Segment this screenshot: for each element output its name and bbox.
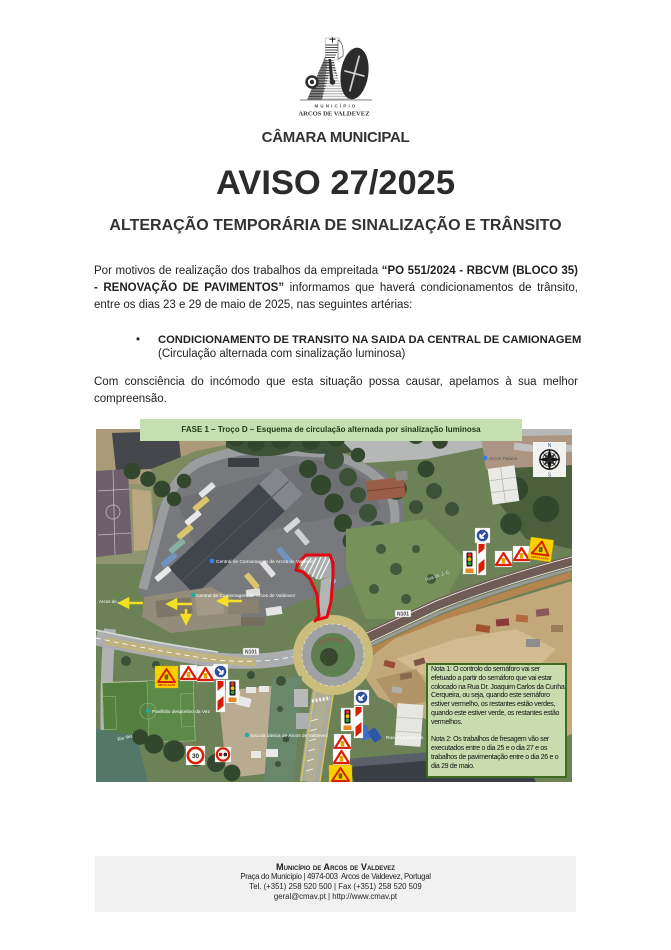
svg-text:Pavilhão desportivo da Vez: Pavilhão desportivo da Vez — [152, 709, 210, 715]
svg-text:Arcos de...: Arcos de... — [99, 599, 121, 604]
svg-text:Rua da cobertura: Rua da cobertura — [386, 735, 423, 741]
svg-text:ARCOS DE VALDEVEZ: ARCOS DE VALDEVEZ — [298, 111, 370, 118]
svg-text:Central de Camionagem de Arcos: Central de Camionagem de Arcos de Valdev… — [216, 559, 316, 565]
svg-text:Central de Camionagem de Arcos: Central de Camionagem de Arcos de Valdev… — [196, 593, 296, 599]
svg-text:Arcos Palace: Arcos Palace — [489, 456, 518, 462]
svg-text:N101: N101 — [245, 650, 257, 656]
svg-text:Escola básica de Arcos de Vald: Escola básica de Arcos de Valdevez — [251, 733, 329, 739]
svg-text:N: N — [548, 443, 552, 449]
svg-text:N101: N101 — [397, 612, 409, 618]
svg-text:MUNICÍPIO: MUNICÍPIO — [315, 104, 358, 109]
